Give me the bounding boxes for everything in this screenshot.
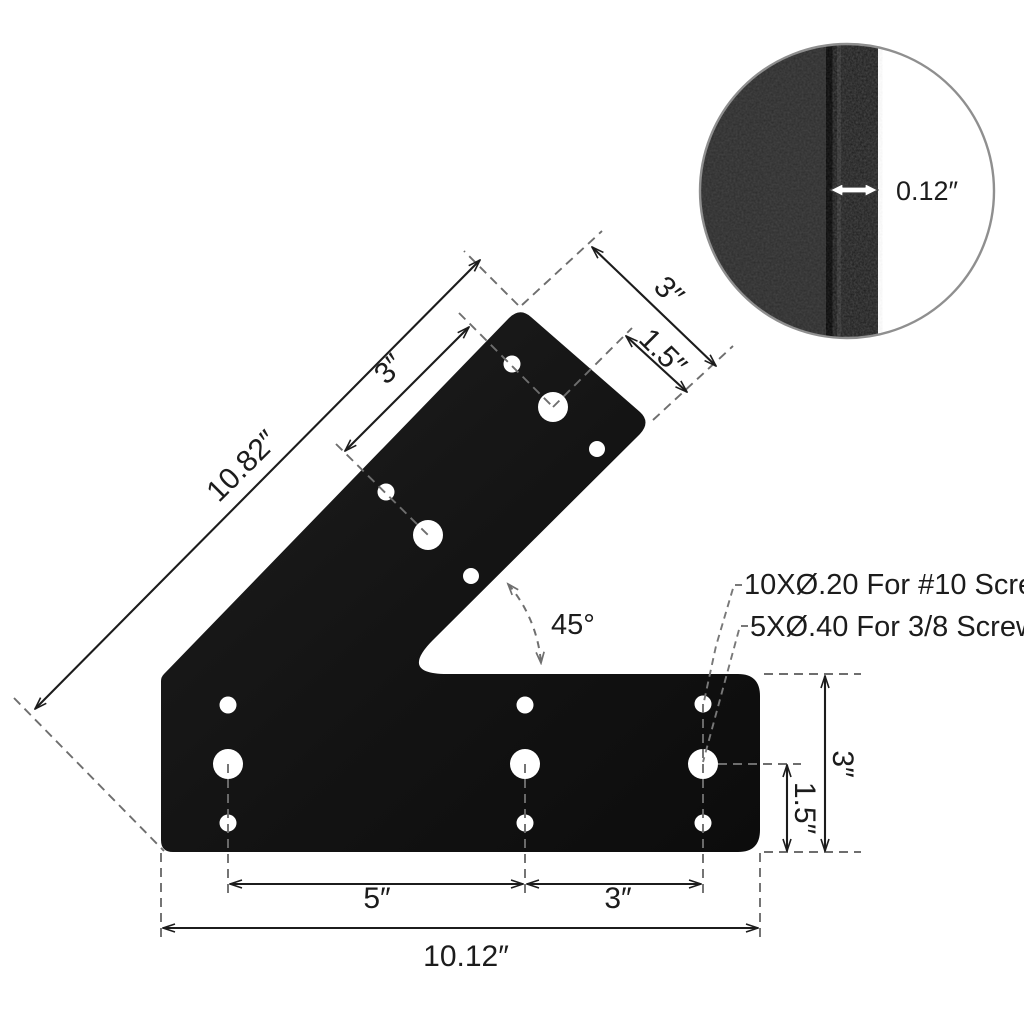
diagram-page: 10.82″ 3″ 3″ 1.5″ 3″ 1.5″ 5″ 3″ 10.12″ 4… — [0, 0, 1024, 1024]
bracket-dimension-diagram: 10.82″ 3″ 3″ 1.5″ 3″ 1.5″ 5″ 3″ 10.12″ 4… — [0, 0, 1024, 1024]
small-hole — [517, 697, 534, 714]
small-hole — [220, 697, 237, 714]
angle-annotation: 45° — [508, 584, 595, 663]
bracket-plate — [161, 312, 760, 852]
small-hole — [378, 484, 395, 501]
dim-arm-end-hole-inset-label: 1.5″ — [632, 322, 693, 383]
small-holes-callout-label: 10XØ.20 For #10 Screws — [744, 569, 1024, 601]
thickness-detail: 0.12″ — [698, 42, 994, 342]
angle-arc — [508, 584, 541, 663]
thickness-label: 0.12″ — [896, 176, 959, 206]
extension-line — [522, 231, 602, 305]
dim-bottom-total-label: 10.12″ — [423, 940, 509, 973]
extension-line — [14, 698, 164, 851]
angle-label: 45° — [551, 609, 595, 641]
dim-right-hole-inset-label: 1.5″ — [788, 782, 821, 835]
bracket-plate-outline — [161, 312, 760, 852]
detail-face-texture — [698, 42, 828, 342]
small-hole — [589, 441, 605, 457]
small-hole — [504, 356, 521, 373]
large-holes-callout-label: 5XØ.40 For 3/8 Screws — [750, 611, 1024, 643]
extension-line — [464, 251, 518, 305]
dim-bottom-right-span-label: 3″ — [604, 882, 632, 915]
dim-diagonal-length-label: 10.82″ — [200, 424, 284, 508]
dim-diagonal-hole-spacing-label: 3″ — [368, 348, 411, 391]
small-hole — [463, 568, 479, 584]
dim-bottom-left-span-label: 5″ — [363, 882, 391, 915]
large-hole — [413, 520, 443, 550]
dim-right-height-label: 3″ — [826, 750, 859, 778]
